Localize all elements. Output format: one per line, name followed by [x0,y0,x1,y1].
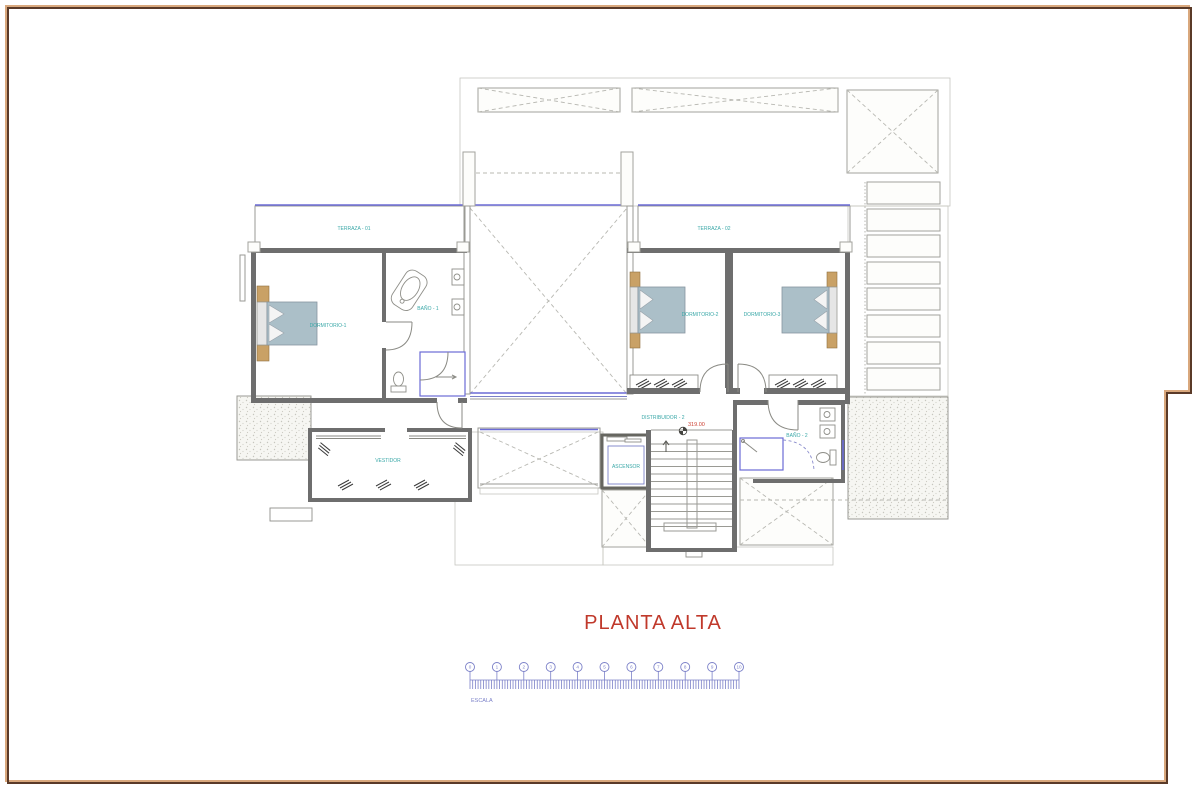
skylight-3 [847,90,938,173]
left-patio-patch [237,396,311,460]
terrace-2-label: TERRAZA - 02 [697,226,730,232]
terrace-1: TERRAZA - 01 [255,205,465,250]
bed-icon-1 [257,286,317,361]
svg-text:4: 4 [576,665,579,670]
exterior-step [270,508,312,521]
staircase [646,430,737,557]
bathroom-1-label: BAÑO - 1 [417,305,439,312]
svg-text:3: 3 [549,665,552,670]
level-value: 319.00 [688,422,705,428]
bedroom-3-label: DORMITORIO-3 [744,312,781,318]
svg-text:2: 2 [523,665,526,670]
svg-text:9: 9 [711,665,714,670]
svg-text:6: 6 [630,665,633,670]
svg-text:0: 0 [469,665,472,670]
scale-bar: 012345678910 [466,663,744,690]
window-pilaster [240,255,245,301]
toilet-icon [391,372,406,392]
svg-text:1: 1 [496,665,499,670]
terrace-1-label: TERRAZA - 01 [337,226,370,232]
skylight-1 [478,88,620,112]
bed-icon-3 [782,272,837,348]
bathroom-1-fixtures [388,267,465,396]
svg-text:7: 7 [657,665,660,670]
bathroom-2-label: BAÑO - 2 [786,432,808,439]
toilet-icon [817,450,837,465]
shower-icon [740,438,814,470]
bridge-passage [478,428,600,494]
bathroom-2-fixtures [740,408,836,470]
svg-text:8: 8 [684,665,687,670]
elevator-label: ASCENSOR [612,464,640,470]
floor-plan-drawing: TERRAZA - 01 TERRAZA - 02 [0,0,1200,791]
pillar-left [463,152,475,206]
floor-plan-page: TERRAZA - 01 TERRAZA - 02 [0,0,1200,791]
bedroom-2-label: DORMITORIO-2 [682,312,719,318]
bedroom-1-label: DORMITORIO-1 [310,323,347,329]
shower-icon [420,352,465,396]
plan-title: PLANTA ALTA [584,612,722,635]
elevator [602,435,650,488]
scale-label: ESCALA [471,698,493,704]
svg-text:10: 10 [736,665,742,670]
louver-strip [865,182,940,394]
page-frame [6,6,1191,783]
pillar-right [621,152,633,206]
svg-text:5: 5 [603,665,606,670]
dressing-room-label: VESTIDOR [375,458,401,464]
corridor-label: DISTRIBUIDOR - 2 [641,415,684,421]
bed-icon-2 [630,272,685,348]
void-space [463,152,633,399]
skylight-2 [632,88,838,112]
terrace-2: TERRAZA - 02 [638,205,850,250]
